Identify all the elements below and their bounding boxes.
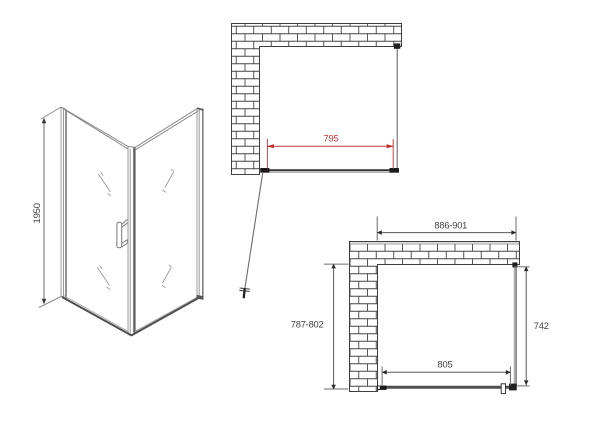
svg-text:1950: 1950 <box>32 203 43 223</box>
svg-text:886-901: 886-901 <box>434 221 467 231</box>
svg-text:795: 795 <box>324 134 339 144</box>
svg-text:805: 805 <box>438 359 453 369</box>
svg-text:787-802: 787-802 <box>291 320 324 330</box>
svg-text:742: 742 <box>534 321 549 331</box>
